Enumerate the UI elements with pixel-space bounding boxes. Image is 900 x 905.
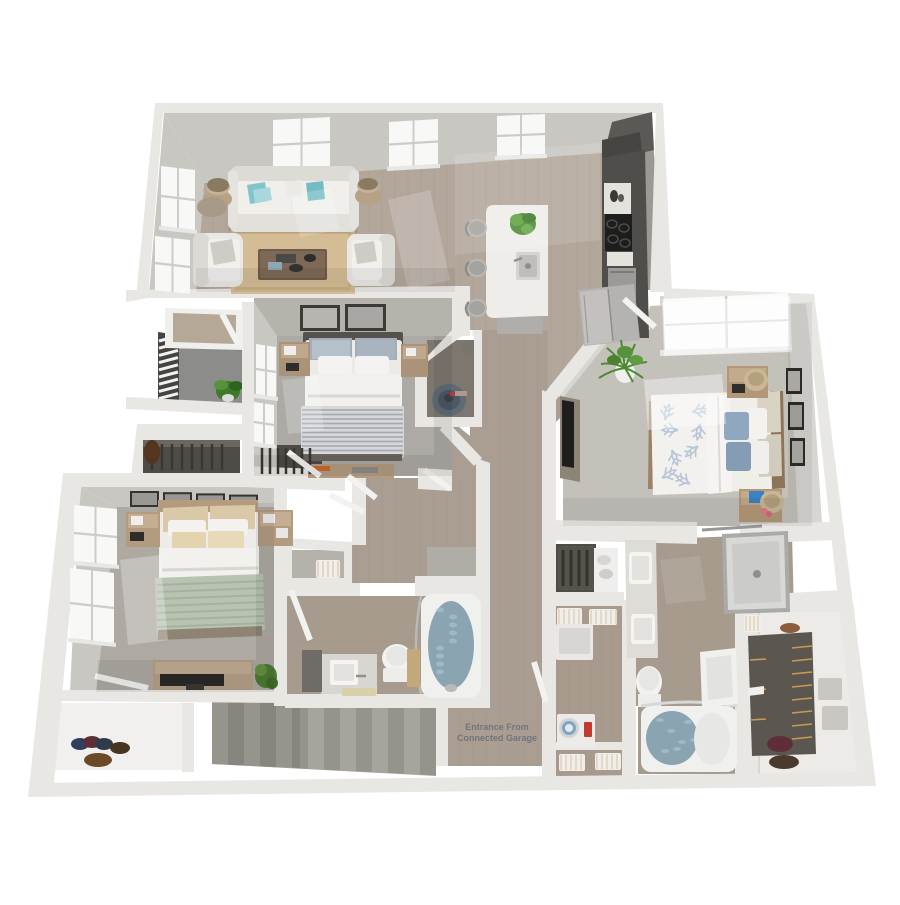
svg-text:Entrance From: Entrance From [465,722,529,732]
svg-text:Connected Garage: Connected Garage [457,733,537,743]
